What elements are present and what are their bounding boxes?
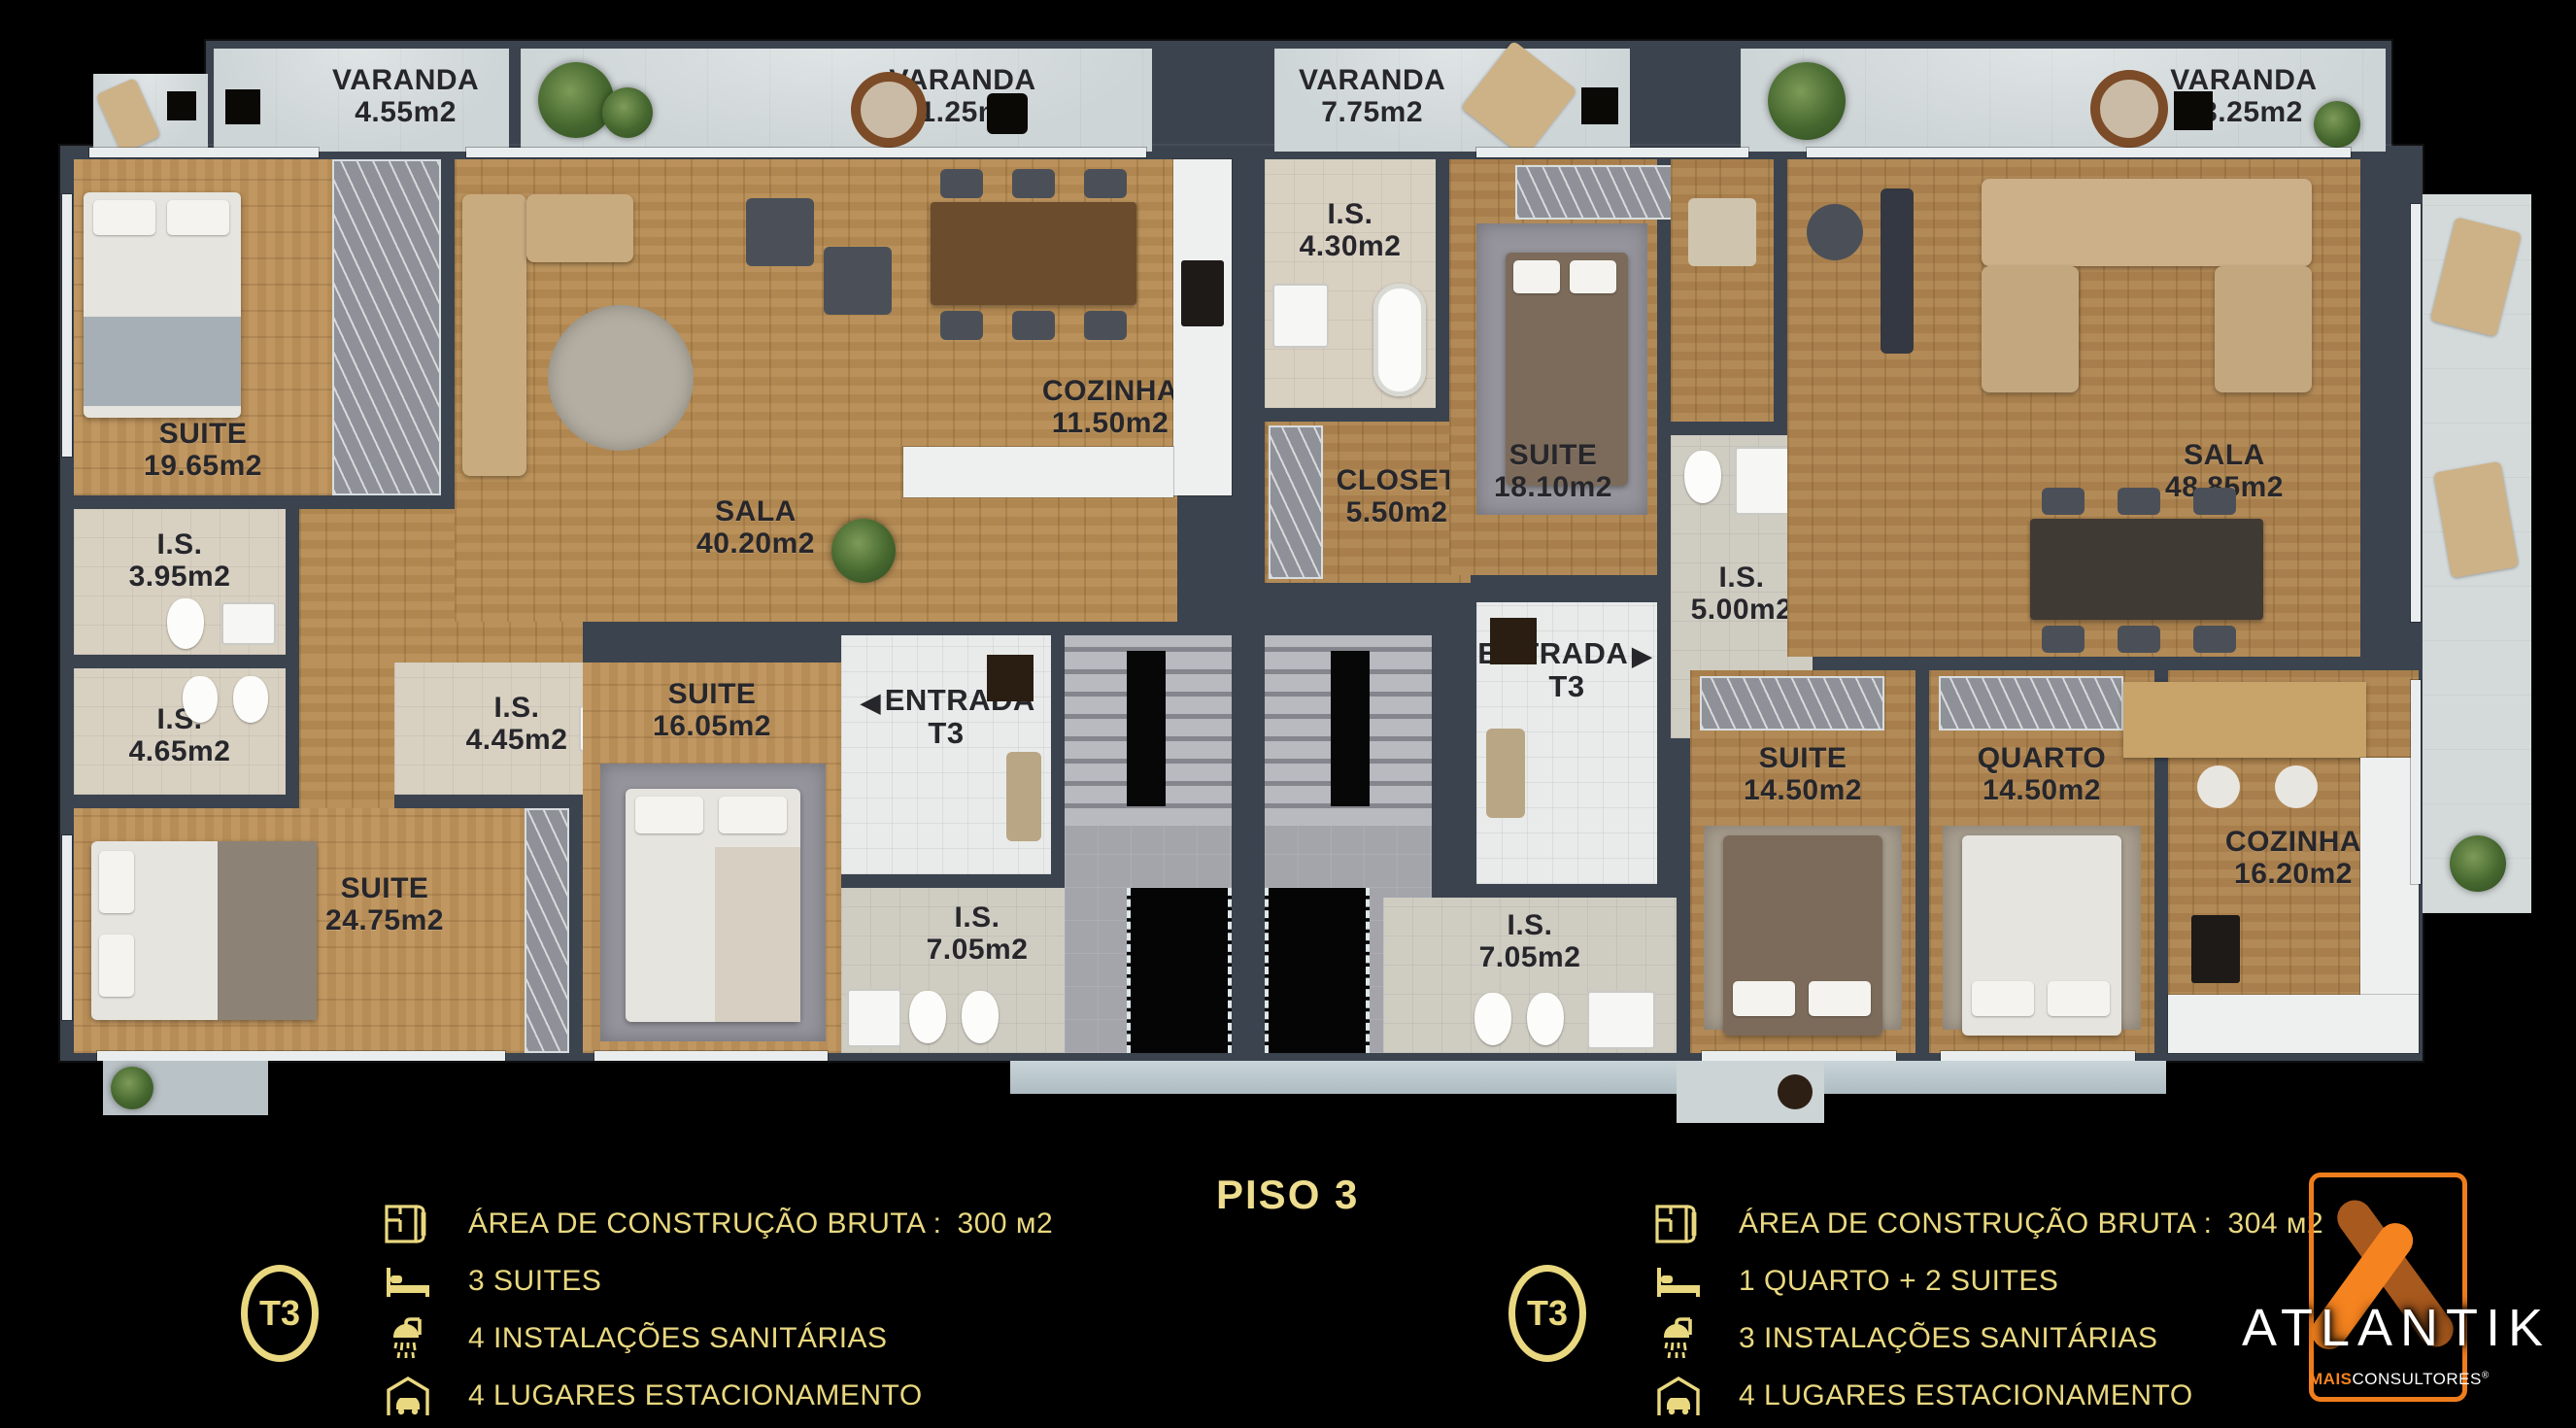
planter (1778, 1074, 1813, 1109)
room-name: I.S. (1327, 198, 1373, 230)
dining-chair (1084, 311, 1127, 340)
window (2411, 680, 2421, 884)
pillow (1733, 981, 1795, 1016)
vanity (1587, 991, 1655, 1049)
walkway (1010, 1061, 2166, 1094)
pillow (1570, 260, 1616, 293)
corridor (299, 663, 394, 808)
room-quarto-1450: QUARTO 14.50m2 (1929, 670, 2154, 1053)
room-name: I.S. (1507, 909, 1552, 941)
window (62, 835, 72, 1020)
pillow (2048, 981, 2110, 1016)
stair-core-left (1065, 635, 1232, 1053)
lounge-chair (2430, 217, 2523, 337)
sofa (462, 194, 526, 476)
bed (84, 192, 241, 418)
room-name: SUITE (341, 872, 429, 904)
window (466, 148, 1146, 157)
plant (831, 519, 896, 583)
side-table (1807, 204, 1863, 260)
dining-chair (1084, 169, 1127, 198)
typology-badge: T3 (241, 1265, 319, 1362)
legend-item-parking: 4 LUGARES ESTACIONAMENTO (1651, 1367, 2323, 1424)
rug (548, 305, 694, 451)
room-name: QUARTO (1978, 742, 2106, 774)
legend-text: 1 QUARTO + 2 SUITES (1739, 1265, 2058, 1297)
room-label: SUITE 16.05m2 (583, 678, 841, 742)
wardrobe-strip (332, 159, 441, 495)
room-name: I.S. (493, 692, 539, 724)
stair-rail (1331, 651, 1370, 806)
balcony-bottom-left (103, 1061, 268, 1115)
room-label: SUITE 19.65m2 (74, 418, 332, 482)
window (1941, 1051, 2135, 1061)
bar-stool (2197, 765, 2240, 808)
bed-throw (84, 317, 241, 406)
room-label: SUITE 18.10m2 (1449, 439, 1657, 503)
window (89, 148, 319, 157)
floor-plan: VARANDA 4.55m2 VARANDA 11.25m2 VARANDA 7… (0, 0, 2576, 1107)
armchair (824, 247, 892, 315)
bed-icon (1651, 1259, 1706, 1304)
room-name: SUITE (1759, 742, 1847, 774)
room-area: 19.65m2 (74, 450, 332, 482)
kitchen-counter (2360, 758, 2419, 995)
hanging-chair (2090, 70, 2168, 148)
cooktop (1181, 260, 1224, 326)
plant (111, 1067, 153, 1109)
typology-badge: T3 (1508, 1265, 1586, 1362)
dining-chair (2118, 488, 2160, 515)
car-garage-icon (1651, 1374, 1706, 1418)
room-name: SALA (2184, 439, 2265, 471)
room-label: SUITE 24.75m2 (254, 872, 516, 936)
shaft-void (1127, 888, 1232, 1053)
page-title: PISO 3 (1216, 1172, 1359, 1218)
plant (1768, 62, 1846, 140)
wardrobe-strip (525, 808, 569, 1053)
dining-chair (940, 311, 983, 340)
room-suite-2475: SUITE 24.75m2 (74, 808, 525, 1053)
brand-name: ATLANTIK (2242, 1298, 2525, 1358)
room-area: 4.65m2 (74, 735, 286, 767)
balcony-7-75: VARANDA 7.75m2 (1274, 49, 1630, 152)
planter (2174, 91, 2213, 130)
room-label: QUARTO 14.50m2 (1929, 742, 2154, 806)
balcony-23-25: VARANDA 23.25m2 (1741, 49, 2386, 152)
pillow (719, 797, 787, 833)
window (62, 194, 72, 457)
toilet (167, 598, 204, 649)
legend-text: 4 INSTALAÇÕES SANITÁRIAS (468, 1322, 888, 1354)
sofa (1982, 266, 2079, 392)
plant (2314, 101, 2360, 148)
legend-item-area: ÁREA DE CONSTRUÇÃO BRUTA :300 м2 (381, 1195, 1053, 1252)
room-suite-1450: SUITE 14.50m2 (1690, 670, 1915, 1053)
door-mat (987, 655, 1034, 701)
legend-item-suites: 3 SUITES (381, 1252, 1053, 1309)
bar-stool (2275, 765, 2318, 808)
room-label: I.S. 7.05m2 (1383, 909, 1677, 973)
legend-rows: ÁREA DE CONSTRUÇÃO BRUTA :300 м2 3 SUITE… (381, 1195, 1053, 1424)
room-area: T3 (1476, 670, 1657, 703)
dining-chair (2042, 626, 2085, 653)
window (97, 1051, 505, 1061)
bidet (183, 676, 218, 723)
room-area: 18.10m2 (1449, 471, 1657, 503)
room-is-430: I.S. 4.30m2 (1265, 159, 1436, 408)
plant (602, 87, 653, 138)
room-area: 4.30m2 (1265, 230, 1436, 262)
door-mat (1490, 618, 1537, 664)
room-area: T3 (841, 717, 1051, 750)
kitchen-island (2123, 682, 2366, 758)
legend-text: ÁREA DE CONSTRUÇÃO BRUTA : (468, 1207, 942, 1240)
shower-icon (381, 1316, 435, 1361)
dining-chair (940, 169, 983, 198)
window (1702, 1051, 1896, 1061)
bathtub (1373, 284, 1426, 396)
legend-item-area: ÁREA DE CONSTRUÇÃO BRUTA :304 м2 (1651, 1195, 2323, 1252)
bed-icon (381, 1259, 435, 1304)
pillow (635, 797, 703, 833)
console-bench (1486, 729, 1525, 818)
pillow (99, 851, 134, 913)
shower-icon (1651, 1316, 1706, 1361)
sofa (2215, 266, 2312, 392)
dining-chair (1012, 169, 1055, 198)
bidet (1527, 993, 1564, 1045)
bed-throw (715, 847, 800, 1022)
balcony-name: VARANDA (332, 64, 479, 96)
dining-chair (1012, 311, 1055, 340)
room-label: I.S. 3.95m2 (74, 528, 286, 593)
dining-table (2030, 519, 2263, 620)
sofa (526, 194, 633, 262)
pillow (93, 200, 155, 235)
room-is-395: I.S. 3.95m2 (74, 509, 286, 655)
plant (538, 62, 614, 138)
kitchen-counter (1173, 159, 1232, 495)
window (1807, 148, 2351, 157)
toilet (1474, 993, 1511, 1045)
pillow (1809, 981, 1871, 1016)
pillow (1972, 981, 2034, 1016)
legend-text: 4 LUGARES ESTACIONAMENTO (468, 1379, 923, 1411)
legend-item-bedrooms: 1 QUARTO + 2 SUITES (1651, 1252, 2323, 1309)
legend-value: 300 м2 (958, 1207, 1054, 1240)
legend-rows: ÁREA DE CONSTRUÇÃO BRUTA :304 м2 1 QUART… (1651, 1195, 2323, 1424)
dressing-area (1671, 159, 1774, 422)
floor-plan-icon (1651, 1202, 1706, 1246)
room-is-465: I.S. 4.65m2 (74, 668, 286, 795)
room-name: I.S. (1718, 561, 1764, 594)
room-entrada-right: ENTRADA▶ T3 (1476, 602, 1657, 884)
planter (987, 93, 1028, 134)
cooktop (2191, 915, 2240, 983)
toilet (909, 991, 946, 1043)
planter (1581, 87, 1618, 124)
room-area: 14.50m2 (1690, 774, 1915, 806)
terrace-right (2423, 194, 2531, 913)
console-bench (1006, 752, 1041, 841)
car-garage-icon (381, 1374, 435, 1418)
kitchen-counter (2168, 995, 2419, 1053)
room-suite-1810: SUITE 18.10m2 (1449, 159, 1657, 575)
dining-chair (2193, 626, 2236, 653)
balcony-area: 11.25m2 (773, 96, 1152, 128)
window (2411, 204, 2421, 622)
room-name: I.S. (954, 901, 1000, 934)
bed (1723, 835, 1882, 1036)
room-area: 7.05m2 (1383, 941, 1677, 973)
balcony-name: VARANDA (1299, 64, 1445, 96)
entry-arrow-icon: ◀ (857, 688, 885, 717)
toilet (233, 676, 268, 723)
brand-subname: MAISCONSULTORES® (2309, 1370, 2457, 1389)
brand-sub-rest: CONSULTORES (2353, 1370, 2482, 1388)
room-label: VARANDA 4.55m2 (302, 64, 509, 128)
room-name: SUITE (668, 678, 757, 710)
plant (2450, 835, 2506, 892)
sink (1272, 284, 1329, 348)
room-sala-4885: SALA 48.85m2 (1787, 159, 2360, 657)
shaft-void (1265, 888, 1370, 1053)
bed (626, 789, 800, 1022)
armchair (746, 198, 814, 266)
room-name: SUITE (159, 418, 248, 450)
registered-mark: ® (2482, 1370, 2490, 1380)
pillow (99, 935, 134, 997)
sink (221, 602, 276, 645)
room-area: 16.05m2 (583, 710, 841, 742)
room-cozinha-1620: COZINHA 16.20m2 (2168, 670, 2419, 1053)
tv-cabinet (1881, 188, 1914, 354)
room-label: I.S. 4.30m2 (1265, 198, 1436, 262)
daybed (1461, 40, 1577, 157)
room-label: VARANDA 7.75m2 (1274, 64, 1470, 128)
room-sala-4020: SALA 40.20m2 COZINHA 11.50m2 (455, 159, 1177, 622)
window (594, 1051, 828, 1061)
pillow (1513, 260, 1560, 293)
entry-arrow-icon: ▶ (1628, 641, 1656, 670)
room-name: CLOSET (1337, 464, 1458, 496)
brand-sub-bold: MAIS (2309, 1370, 2353, 1388)
legend-text: 3 INSTALAÇÕES SANITÁRIAS (1739, 1322, 2158, 1354)
toilet (1684, 451, 1721, 503)
room-closet-550: CLOSET 5.50m2 (1265, 422, 1471, 583)
dining-chair (2118, 626, 2160, 653)
terrace-top-left (93, 74, 208, 155)
staircase (1065, 635, 1232, 826)
vanity (847, 989, 901, 1047)
stair-rail (1127, 651, 1166, 806)
balcony-4-55: VARANDA 4.55m2 (214, 49, 509, 152)
wardrobe-strip (1700, 676, 1884, 731)
bidet (962, 991, 999, 1043)
balcony-area: 4.55m2 (302, 96, 509, 128)
pouf (1688, 198, 1756, 266)
window (1476, 148, 1748, 157)
staircase (1265, 635, 1432, 826)
wardrobe-strip (1939, 676, 2123, 731)
legend-text: 4 LUGARES ESTACIONAMENTO (1739, 1379, 2193, 1411)
balcony-bottom-right (1677, 1061, 1824, 1123)
wardrobe-strip (1269, 425, 1323, 579)
planter (225, 89, 260, 124)
balcony-area: 7.75m2 (1274, 96, 1470, 128)
hanging-chair (851, 72, 927, 148)
legend-item-parking: 4 LUGARES ESTACIONAMENTO (381, 1367, 1053, 1424)
room-entrada-left: ◀ENTRADA T3 (841, 635, 1051, 874)
dining-chair (2193, 488, 2236, 515)
room-name: SALA (715, 495, 797, 527)
room-suite-1605: SUITE 16.05m2 (583, 663, 841, 1053)
room-name: COZINHA (2225, 826, 2361, 858)
room-suite-1965: SUITE 19.65m2 (74, 159, 332, 495)
legend-item-bathrooms: 3 INSTALAÇÕES SANITÁRIAS (1651, 1309, 2323, 1367)
room-name: COZINHA (1042, 375, 1178, 407)
legend-text: ÁREA DE CONSTRUÇÃO BRUTA : (1739, 1207, 2213, 1240)
lounge-chair (2433, 461, 2519, 578)
sofa (1982, 179, 2312, 266)
pillow (167, 200, 229, 235)
balcony-11-25: VARANDA 11.25m2 (521, 49, 1152, 152)
room-area: 14.50m2 (1929, 774, 2154, 806)
dining-table (931, 202, 1136, 305)
dining-chair (2042, 488, 2085, 515)
room-area: 3.95m2 (74, 561, 286, 593)
legend-item-bathrooms: 4 INSTALAÇÕES SANITÁRIAS (381, 1309, 1053, 1367)
room-label: SUITE 14.50m2 (1690, 742, 1915, 806)
kitchen-counter (903, 447, 1173, 497)
floor-plan-icon (381, 1202, 435, 1246)
room-label: VARANDA 11.25m2 (773, 64, 1152, 128)
legend-text: 3 SUITES (468, 1265, 601, 1297)
bed (1962, 835, 2121, 1036)
lounge-chair (95, 78, 160, 153)
room-name: I.S. (156, 528, 202, 561)
room-area: 24.75m2 (254, 904, 516, 936)
room-is-705-right: I.S. 7.05m2 (1383, 898, 1677, 1053)
room-name: SUITE (1509, 439, 1598, 471)
planter (167, 91, 196, 120)
